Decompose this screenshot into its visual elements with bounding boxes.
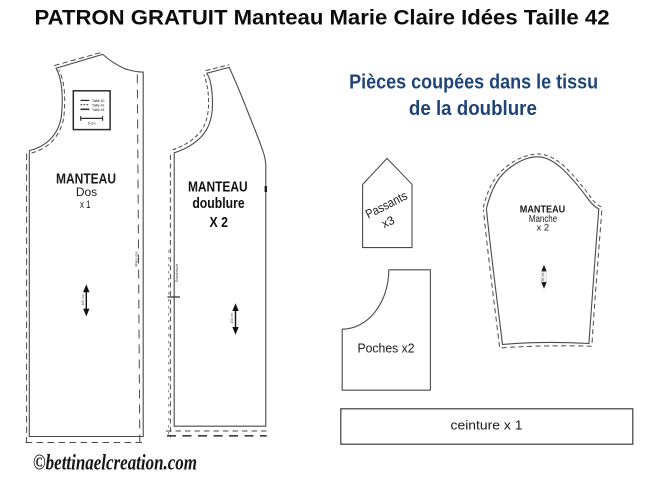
svg-text:de la doublure: de la doublure (409, 98, 537, 120)
svg-text:Pièces coupées dans le tissu: Pièces coupées dans le tissu (349, 72, 598, 94)
svg-text:x 1: x 1 (80, 199, 91, 211)
svg-text:PATRON GRATUIT Manteau Marie: PATRON GRATUIT Manteau Marie Claire Idée… (35, 7, 610, 30)
svg-text:MANTEAU: MANTEAU (188, 179, 248, 196)
svg-text:Poches x2: Poches x2 (358, 340, 415, 355)
svg-text:5 cm: 5 cm (88, 122, 96, 126)
svg-text:Taille 44: Taille 44 (92, 108, 105, 112)
svg-text:Grandissure: Grandissure (175, 264, 179, 283)
svg-text:doublure: doublure (192, 195, 244, 212)
svg-text:Taille 40: Taille 40 (92, 99, 105, 103)
svg-text:Dos: Dos (76, 185, 97, 199)
svg-text:100 cm: 100 cm (81, 294, 85, 305)
svg-text:x 2: x 2 (536, 223, 549, 234)
svg-text:Taille 42: Taille 42 (92, 103, 105, 107)
svg-text:100 cm: 100 cm (230, 313, 234, 324)
svg-text:©bettinaelcreation.com: ©bettinaelcreation.com (33, 450, 197, 475)
svg-text:50 cm: 50 cm (541, 272, 545, 281)
svg-text:ceinture x 1: ceinture x 1 (451, 418, 523, 433)
svg-text:X 2: X 2 (209, 214, 228, 231)
svg-text:Milieu dos: Milieu dos (135, 251, 139, 267)
